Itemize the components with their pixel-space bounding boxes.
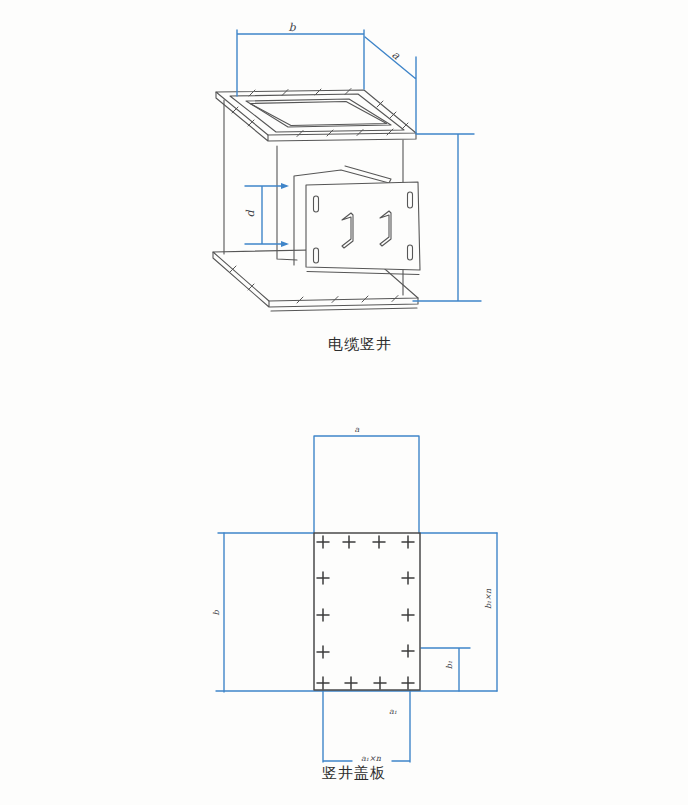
cover-dim-label-b1: b₁: [446, 661, 454, 669]
cover-caption: 竖井盖板: [322, 764, 386, 783]
door-panel: [294, 166, 420, 275]
technical-drawing-page: b a d 电缆竖井 a b b₁×n b₁ a₁ a₁×n 竖井盖板: [0, 0, 688, 805]
dim-b-line: [237, 30, 364, 96]
dim-b1-line: [421, 648, 470, 691]
bottom-flange-base-line: [271, 308, 417, 311]
cover-dim-label-b1xn: b₁×n: [485, 589, 493, 609]
cable-shaft-drawing: [0, 0, 688, 380]
panel-bottom-edge: [307, 272, 419, 275]
cover-dim-label-a1: a₁: [389, 708, 397, 716]
dim-height-line: [413, 134, 481, 301]
bolt-hole-crosses: [317, 536, 414, 689]
cover-dim-label-a: a: [355, 426, 360, 434]
top-flange-outer: [216, 90, 416, 135]
top-flange-opening-inner: [250, 102, 387, 126]
shaft-dim-label-b: b: [288, 22, 295, 33]
cover-dim-label-b: b: [213, 610, 221, 615]
panel-face: [306, 182, 420, 270]
arrow-icon: [281, 183, 289, 189]
shaft-dim-label-d: d: [245, 210, 256, 217]
shaft-caption: 电缆竖井: [328, 335, 392, 354]
dim-a-line: [365, 37, 416, 133]
dim-top-a-line: [314, 436, 419, 533]
cover-plate-outline: [314, 533, 420, 690]
cover-plate-drawing: [0, 420, 688, 805]
dim-d-arrowheads: [281, 183, 289, 247]
dim-a1n-line: [323, 691, 410, 762]
cover-dimension-lines: [216, 436, 497, 762]
arrow-icon: [281, 241, 289, 247]
cover-dim-label-a1xn: a₁×n: [361, 755, 381, 763]
